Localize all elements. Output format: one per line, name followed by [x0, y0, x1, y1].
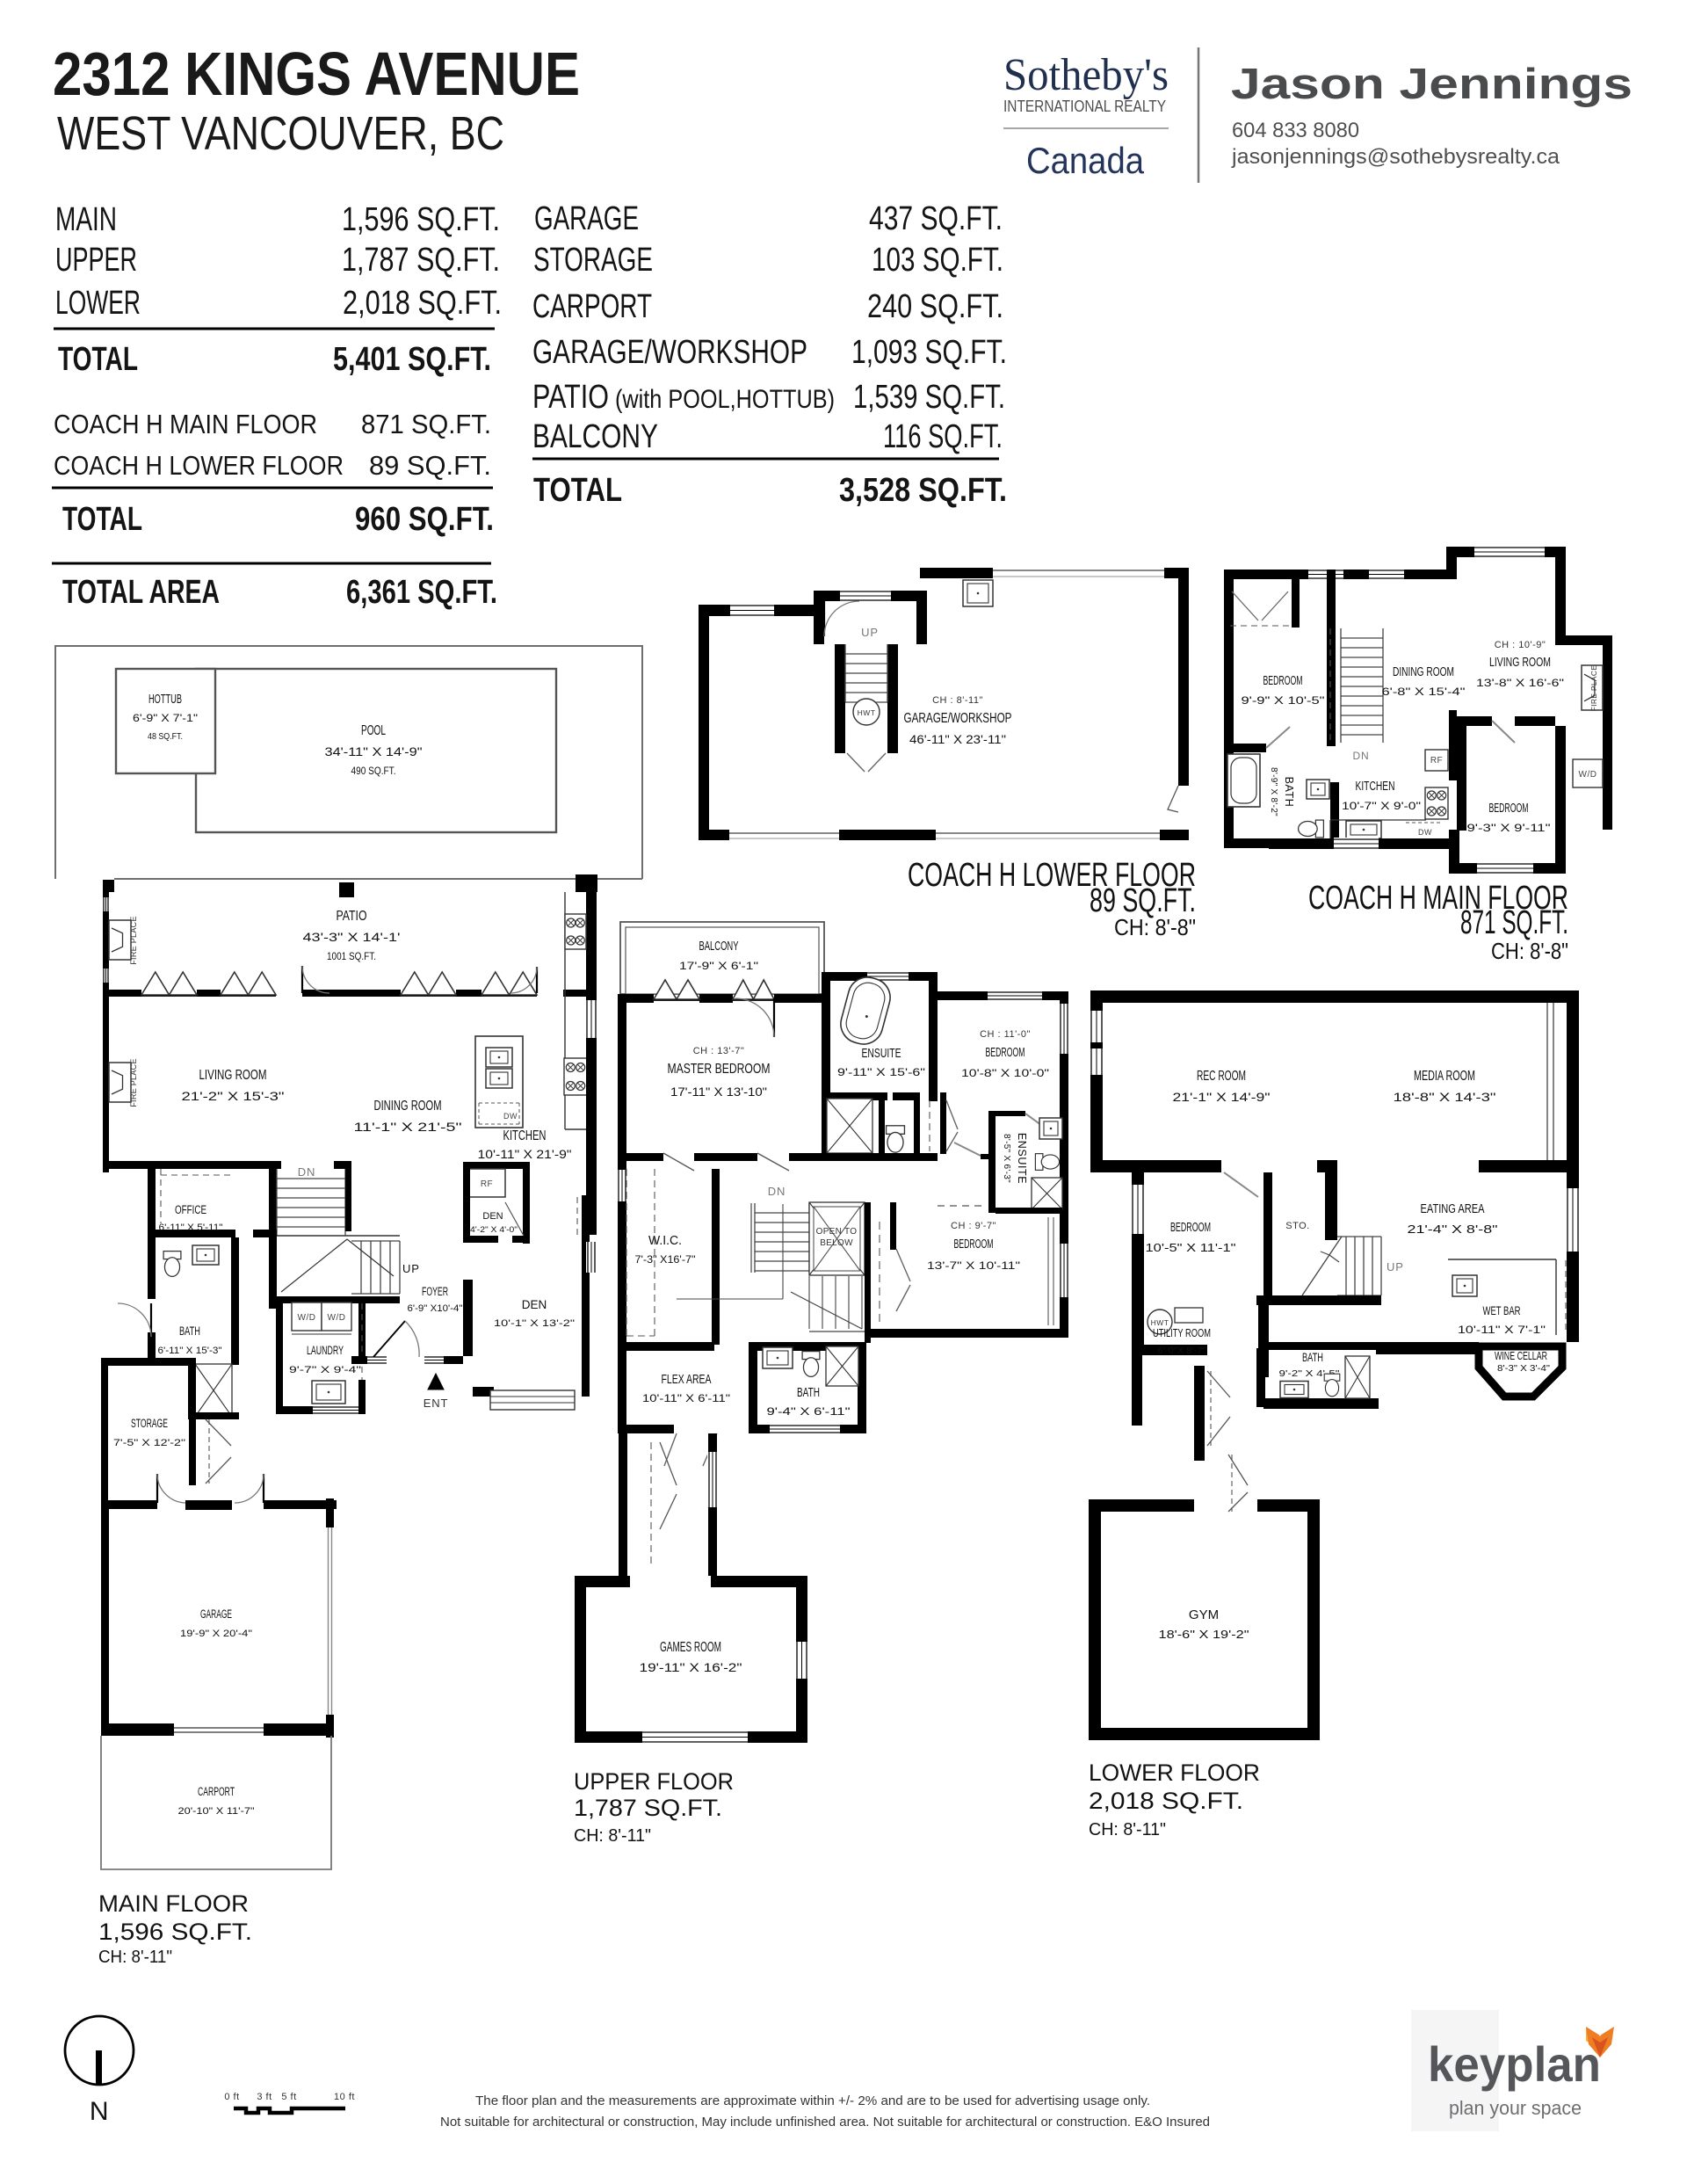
- svg-text:1001 SQ.FT.: 1001 SQ.FT.: [327, 952, 376, 962]
- svg-text:KITCHEN: KITCHEN: [1356, 780, 1395, 794]
- svg-text:MAIN: MAIN: [55, 201, 117, 238]
- svg-text:LIVING ROOM: LIVING ROOM: [1489, 656, 1551, 670]
- svg-text:GAMES ROOM: GAMES ROOM: [660, 1640, 721, 1655]
- svg-text:FLEX AREA: FLEX AREA: [662, 1373, 712, 1387]
- svg-text:LOWER: LOWER: [55, 285, 141, 322]
- svg-text:WEST VANCOUVER, BC: WEST VANCOUVER, BC: [57, 107, 504, 160]
- svg-text:INTERNATIONAL REALTY: INTERNATIONAL REALTY: [1003, 98, 1166, 115]
- svg-text:BEDROOM: BEDROOM: [1263, 674, 1303, 688]
- svg-text:Jason Jennings: Jason Jennings: [1231, 61, 1633, 108]
- svg-text:1,596 SQ.FT.: 1,596 SQ.FT.: [342, 201, 500, 238]
- svg-text:UPPER FLOOR: UPPER FLOOR: [574, 1768, 734, 1795]
- svg-text:W/D: W/D: [298, 1313, 316, 1323]
- svg-text:COACH H MAIN FLOOR: COACH H MAIN FLOOR: [54, 409, 317, 439]
- svg-text:960 SQ.FT.: 960 SQ.FT.: [355, 501, 494, 538]
- svg-text:GARAGE/WORKSHOP: GARAGE/WORKSHOP: [904, 711, 1012, 726]
- svg-text:11'-1" X 21'-5": 11'-1" X 21'-5": [354, 1120, 462, 1134]
- svg-text:FIRE PLACE: FIRE PLACE: [1589, 665, 1598, 712]
- svg-text:Not suitable for architectural: Not suitable for architectural or constr…: [440, 2115, 1210, 2130]
- svg-text:19'-11" X 16'-2": 19'-11" X 16'-2": [640, 1660, 742, 1674]
- svg-text:PATIO: PATIO: [532, 379, 609, 416]
- svg-text:Sotheby's: Sotheby's: [1003, 50, 1169, 100]
- svg-text:POOL: POOL: [361, 723, 386, 738]
- svg-text:HOTTUB: HOTTUB: [148, 693, 182, 707]
- svg-text:8'-5" X 6'-3": 8'-5" X 6'-3": [1002, 1134, 1011, 1183]
- svg-text:UP: UP: [402, 1262, 420, 1275]
- svg-text:DINING ROOM: DINING ROOM: [1393, 665, 1454, 679]
- svg-text:DW: DW: [1418, 828, 1432, 837]
- svg-text:9'-9" X 10'-5": 9'-9" X 10'-5": [1242, 694, 1325, 707]
- svg-text:BATH: BATH: [179, 1324, 200, 1338]
- svg-text:17'-11" X 13'-10": 17'-11" X 13'-10": [670, 1085, 767, 1099]
- svg-text:N: N: [90, 2097, 109, 2126]
- svg-text:604 833 8080: 604 833 8080: [1232, 119, 1359, 142]
- svg-text:7'-3" X16'-7": 7'-3" X16'-7": [635, 1253, 696, 1266]
- svg-text:18'-6" X 19'-2": 18'-6" X 19'-2": [1159, 1628, 1249, 1641]
- svg-text:2312 KINGS AVENUE: 2312 KINGS AVENUE: [53, 40, 580, 108]
- svg-text:5,401 SQ.FT.: 5,401 SQ.FT.: [333, 341, 491, 378]
- svg-text:UTILITY ROOM: UTILITY ROOM: [1153, 1327, 1211, 1339]
- svg-text:8'-3" X 3'-4": 8'-3" X 3'-4": [1497, 1363, 1550, 1374]
- svg-text:6'-8" X 15'-4": 6'-8" X 15'-4": [1382, 686, 1466, 698]
- svg-text:CH : 10'-9": CH : 10'-9": [1495, 640, 1546, 650]
- svg-text:21'-1" X 14'-9": 21'-1" X 14'-9": [1173, 1090, 1271, 1104]
- svg-text:BEDROOM: BEDROOM: [1489, 802, 1529, 816]
- svg-text:OFFICE: OFFICE: [175, 1203, 206, 1216]
- svg-text:DW: DW: [503, 1112, 518, 1121]
- svg-text:3 ft: 3 ft: [257, 2092, 272, 2102]
- svg-text:keyplan: keyplan: [1428, 2036, 1601, 2092]
- svg-text:HWT: HWT: [858, 708, 876, 717]
- svg-text:LOWER FLOOR: LOWER FLOOR: [1089, 1760, 1260, 1786]
- svg-text:9'-7" X 9'-4": 9'-7" X 9'-4": [289, 1365, 361, 1375]
- svg-text:CH: 8'-11": CH: 8'-11": [574, 1826, 651, 1846]
- svg-text:1,093 SQ.FT.: 1,093 SQ.FT.: [851, 334, 1007, 371]
- svg-text:UP: UP: [1387, 1260, 1404, 1273]
- svg-text:GARAGE/WORKSHOP: GARAGE/WORKSHOP: [532, 334, 807, 371]
- svg-text:2,018 SQ.FT.: 2,018 SQ.FT.: [343, 285, 502, 322]
- svg-text:6,361 SQ.FT.: 6,361 SQ.FT.: [346, 574, 497, 611]
- svg-text:Canada: Canada: [1026, 140, 1145, 181]
- svg-text:10 ft: 10 ft: [334, 2092, 355, 2102]
- svg-text:MEDIA ROOM: MEDIA ROOM: [1414, 1069, 1475, 1084]
- svg-text:GARAGE: GARAGE: [534, 200, 639, 237]
- svg-text:10'-7" X 9'-0": 10'-7" X 9'-0": [1342, 800, 1421, 812]
- svg-text:13'-7" X 10'-11": 13'-7" X 10'-11": [927, 1259, 1020, 1272]
- svg-text:GYM: GYM: [1189, 1607, 1219, 1622]
- svg-text:10'-11" X 6'-11": 10'-11" X 6'-11": [642, 1392, 730, 1404]
- svg-text:21'-2" X 15'-3": 21'-2" X 15'-3": [182, 1089, 285, 1103]
- svg-text:34'-11" X 14'-9": 34'-11" X 14'-9": [325, 744, 423, 758]
- svg-text:871 SQ.FT.: 871 SQ.FT.: [1460, 904, 1568, 941]
- svg-text:1,596 SQ.FT.: 1,596 SQ.FT.: [98, 1919, 252, 1945]
- svg-text:3,528 SQ.FT.: 3,528 SQ.FT.: [839, 472, 1007, 509]
- svg-text:871 SQ.FT.: 871 SQ.FT.: [361, 409, 491, 439]
- svg-text:CARPORT: CARPORT: [532, 288, 652, 325]
- svg-text:490 SQ.FT.: 490 SQ.FT.: [351, 766, 396, 777]
- svg-text:46'-11" X 23'-11": 46'-11" X 23'-11": [909, 732, 1006, 746]
- svg-text:19'-9" X 20'-4": 19'-9" X 20'-4": [180, 1629, 252, 1639]
- svg-text:ENSUITE: ENSUITE: [862, 1047, 901, 1061]
- svg-text:10'-5" X 11'-1": 10'-5" X 11'-1": [1146, 1241, 1236, 1254]
- svg-text:BEDROOM: BEDROOM: [954, 1237, 994, 1252]
- svg-text:9'-11" X 15'-6": 9'-11" X 15'-6": [837, 1066, 925, 1078]
- svg-text:STO.: STO.: [1285, 1221, 1309, 1231]
- svg-text:17'-9" X 6'-1": 17'-9" X 6'-1": [679, 960, 758, 972]
- svg-text:PATIO: PATIO: [337, 909, 367, 924]
- svg-text:FOYER: FOYER: [422, 1285, 448, 1298]
- svg-text:The floor plan and the measure: The floor plan and the measurements are …: [475, 2093, 1150, 2108]
- svg-text:KITCHEN: KITCHEN: [503, 1128, 547, 1143]
- svg-text:10'-8" X 10'-0": 10'-8" X 10'-0": [961, 1067, 1049, 1079]
- svg-text:437 SQ.FT.: 437 SQ.FT.: [869, 200, 1003, 237]
- svg-text:240 SQ.FT.: 240 SQ.FT.: [867, 288, 1003, 325]
- svg-text:5 ft: 5 ft: [281, 2092, 296, 2102]
- svg-text:18'-8" X 14'-3": 18'-8" X 14'-3": [1394, 1090, 1496, 1104]
- svg-text:9'-3" X 9'-11": 9'-3" X 9'-11": [1467, 822, 1551, 834]
- svg-text:8'-9" X 8'-2": 8'-9" X 8'-2": [1269, 767, 1278, 816]
- svg-text:BATH: BATH: [797, 1386, 820, 1400]
- svg-text:BEDROOM: BEDROOM: [1170, 1220, 1211, 1235]
- svg-text:STORAGE: STORAGE: [131, 1417, 168, 1430]
- svg-text:1,787 SQ.FT.: 1,787 SQ.FT.: [342, 242, 500, 279]
- svg-text:89 SQ.FT.: 89 SQ.FT.: [369, 450, 491, 481]
- svg-text:BELOW: BELOW: [820, 1238, 853, 1248]
- svg-text:CH: 8'-11": CH: 8'-11": [1089, 1820, 1166, 1839]
- svg-text:BATH: BATH: [1283, 777, 1295, 808]
- svg-text:CH : 13'-7": CH : 13'-7": [693, 1046, 745, 1056]
- svg-text:10'-11" X 7'-1": 10'-11" X 7'-1": [1458, 1324, 1546, 1336]
- svg-text:10'-1" X 13'-2": 10'-1" X 13'-2": [494, 1318, 575, 1329]
- svg-text:1,539 SQ.FT.: 1,539 SQ.FT.: [853, 379, 1005, 416]
- svg-text:9'-4" X 6'-11": 9'-4" X 6'-11": [767, 1405, 851, 1418]
- svg-text:LAUNDRY: LAUNDRY: [307, 1344, 344, 1357]
- svg-text:CARPORT: CARPORT: [198, 1785, 235, 1798]
- svg-text:103 SQ.FT.: 103 SQ.FT.: [872, 242, 1003, 279]
- svg-text:GARAGE: GARAGE: [200, 1607, 232, 1621]
- svg-text:FIRE PLACE: FIRE PLACE: [129, 1058, 138, 1107]
- svg-text:LIVING ROOM: LIVING ROOM: [199, 1068, 267, 1083]
- svg-text:6'-0"X 8'-7": 6'-0"X 8'-7": [1158, 1346, 1206, 1356]
- svg-text:13'-8" X 16'-6": 13'-8" X 16'-6": [1476, 677, 1564, 689]
- svg-text:10'-11" X 21'-9": 10'-11" X 21'-9": [478, 1148, 572, 1161]
- svg-text:TOTAL: TOTAL: [533, 472, 622, 509]
- svg-text:RF: RF: [1430, 756, 1443, 765]
- svg-text:MASTER BEDROOM: MASTER BEDROOM: [668, 1062, 771, 1077]
- svg-text:STORAGE: STORAGE: [533, 242, 653, 279]
- svg-text:CH : 8'-11": CH : 8'-11": [932, 695, 983, 706]
- svg-text:DINING ROOM: DINING ROOM: [374, 1099, 442, 1114]
- svg-text:7'-5" X 12'-2": 7'-5" X 12'-2": [113, 1438, 185, 1448]
- svg-text:EATING AREA: EATING AREA: [1421, 1201, 1485, 1216]
- svg-text:TOTAL: TOTAL: [62, 501, 142, 538]
- svg-text:CH: 8'-8": CH: 8'-8": [1491, 938, 1568, 964]
- svg-text:21'-4" X 8'-8": 21'-4" X 8'-8": [1408, 1223, 1499, 1236]
- svg-text:BATH: BATH: [1302, 1351, 1323, 1364]
- svg-text:43'-3" X 14'-1': 43'-3" X 14'-1': [303, 930, 401, 944]
- svg-text:W/D: W/D: [328, 1313, 346, 1323]
- svg-text:WINE CELLAR: WINE CELLAR: [1495, 1350, 1547, 1362]
- svg-text:4'-2" X 4'-0": 4'-2" X 4'-0": [470, 1225, 518, 1235]
- svg-text:CH: 8'-8": CH: 8'-8": [1114, 914, 1196, 940]
- svg-text:OPEN TO: OPEN TO: [816, 1227, 858, 1237]
- svg-text:MAIN FLOOR: MAIN FLOOR: [98, 1890, 249, 1917]
- svg-text:RF: RF: [481, 1179, 493, 1189]
- svg-text:ENSUITE: ENSUITE: [1016, 1133, 1028, 1184]
- svg-text:CH: 8'-11": CH: 8'-11": [98, 1948, 172, 1967]
- svg-text:6'-9" X 7'-1": 6'-9" X 7'-1": [133, 712, 198, 724]
- svg-text:REC ROOM: REC ROOM: [1197, 1069, 1246, 1084]
- svg-text:FIRE PLACE: FIRE PLACE: [129, 916, 138, 965]
- svg-text:HWT: HWT: [1151, 1318, 1169, 1327]
- svg-text:DN: DN: [768, 1185, 786, 1198]
- svg-text:48 SQ.FT.: 48 SQ.FT.: [148, 732, 183, 742]
- svg-text:DN: DN: [1353, 750, 1370, 762]
- svg-text:COACH H LOWER FLOOR: COACH H LOWER FLOOR: [54, 450, 344, 481]
- svg-text:ENT: ENT: [424, 1397, 448, 1410]
- svg-text:6'-11" X 5'-11": 6'-11" X 5'-11": [159, 1223, 223, 1233]
- svg-text:DEN: DEN: [482, 1211, 503, 1222]
- svg-text:6'-11" X 15'-3": 6'-11" X 15'-3": [158, 1346, 222, 1356]
- svg-text:DEN: DEN: [522, 1298, 547, 1311]
- svg-text:DN: DN: [298, 1165, 315, 1179]
- svg-text:BEDROOM: BEDROOM: [986, 1046, 1025, 1060]
- svg-text:BALCONY: BALCONY: [699, 940, 739, 954]
- svg-text:2,018 SQ.FT.: 2,018 SQ.FT.: [1089, 1788, 1243, 1814]
- svg-text:(with POOL,HOTTUB): (with POOL,HOTTUB): [615, 385, 835, 414]
- svg-text:UPPER: UPPER: [55, 242, 137, 279]
- svg-text:20'-10" X 11'-7": 20'-10" X 11'-7": [178, 1806, 255, 1817]
- svg-text:CH : 11'-0": CH : 11'-0": [980, 1029, 1031, 1040]
- svg-text:0 ft: 0 ft: [224, 2092, 239, 2102]
- svg-text:TOTAL AREA: TOTAL AREA: [62, 574, 220, 611]
- svg-text:116 SQ.FT.: 116 SQ.FT.: [883, 418, 1003, 455]
- svg-text:TOTAL: TOTAL: [58, 341, 138, 378]
- svg-text:jasonjennings@sothebysrealty.c: jasonjennings@sothebysrealty.ca: [1231, 145, 1560, 169]
- svg-text:1,787 SQ.FT.: 1,787 SQ.FT.: [574, 1795, 722, 1821]
- svg-text:W/D: W/D: [1579, 770, 1597, 780]
- svg-text:W.I.C.: W.I.C.: [648, 1234, 682, 1248]
- svg-text:BALCONY: BALCONY: [532, 418, 658, 455]
- svg-text:6'-9" X10'-4": 6'-9" X10'-4": [408, 1303, 463, 1314]
- svg-text:CH : 9'-7": CH : 9'-7": [951, 1221, 996, 1231]
- svg-text:WET BAR: WET BAR: [1483, 1303, 1521, 1317]
- svg-text:UP: UP: [861, 626, 879, 639]
- svg-text:plan your space: plan your space: [1449, 2097, 1582, 2119]
